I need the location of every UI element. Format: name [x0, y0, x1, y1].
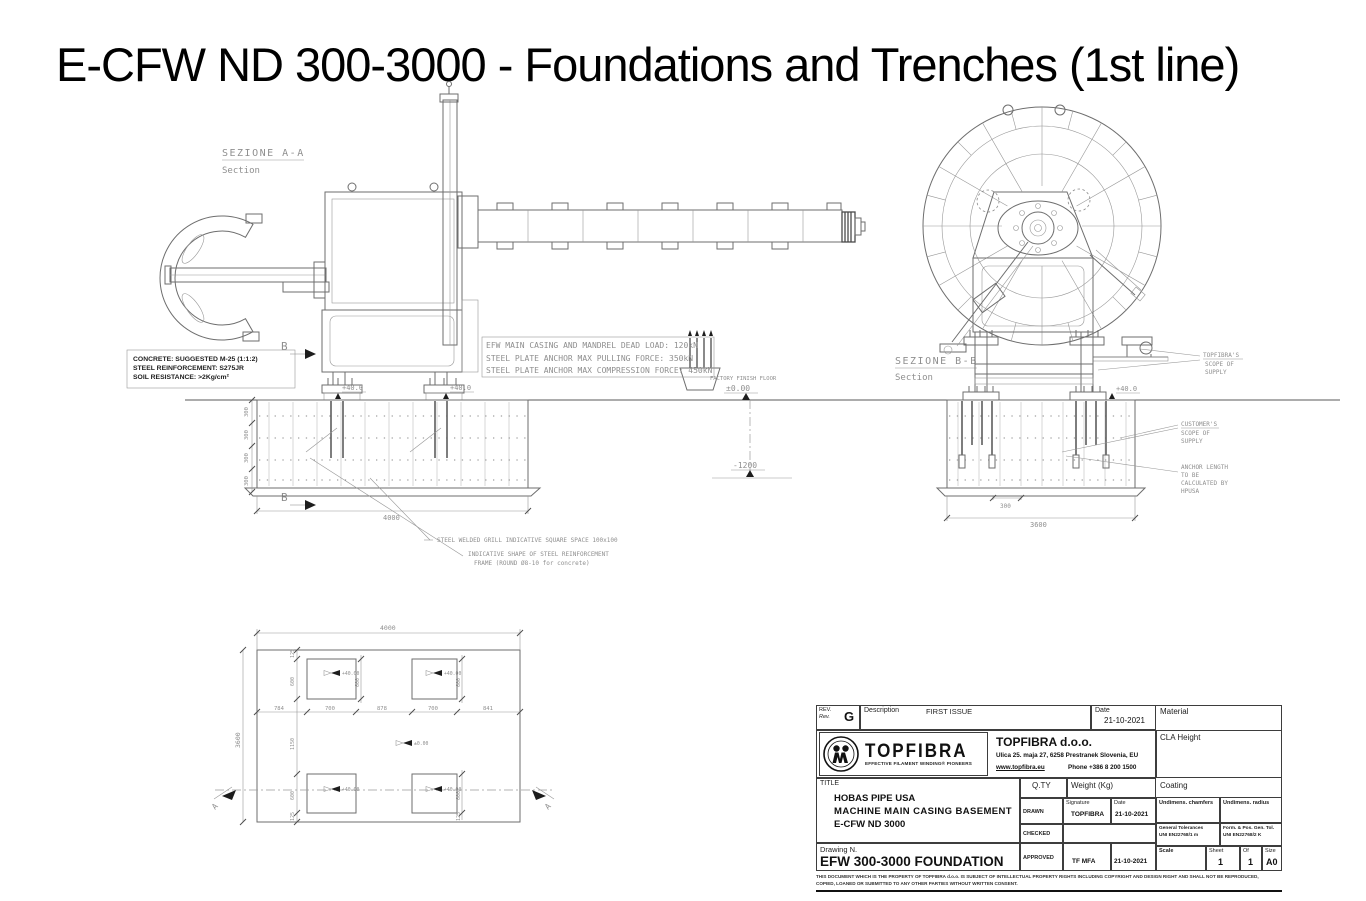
plan-outline — [257, 650, 520, 822]
plan-floor-level: ±0.00 — [414, 741, 429, 747]
dim-bb-pad-space: 300 — [1000, 503, 1011, 510]
logo-wordmark: TOPFIBRA — [865, 741, 972, 761]
scope-customer-line1: CUSTOMER'S — [1181, 421, 1218, 428]
concrete-note-line1: CONCRETE: SUGGESTED M-25 (1:1:2) — [133, 356, 258, 363]
scope-topfibra-line3: SUPPLY — [1205, 369, 1227, 376]
plan-dim-row: 700 — [428, 706, 438, 712]
plan-dim-width: 4000 — [380, 624, 396, 632]
scope-customer-line2: SCOPE OF — [1181, 430, 1210, 437]
scope-topfibra-line1: TOPFIBRA'S — [1203, 352, 1240, 359]
drawing-n-label: Drawing N. — [820, 845, 857, 854]
plan-pad-level: +40.00 — [342, 787, 359, 793]
logo-tagline: EFFECTIVE FILAMENT WINDING® PIONEERS — [865, 761, 972, 766]
company-phone: Phone +386 8 200 1500 — [1068, 764, 1136, 771]
signature-label: Signature — [1066, 800, 1090, 806]
plan-pocket — [307, 774, 356, 813]
drawn-signature: TOPFIBRA — [1071, 811, 1104, 818]
rev-label-it: Rev. — [819, 714, 830, 720]
date-label: Date — [1095, 707, 1110, 714]
plan-dim-col: 1150 — [290, 738, 296, 750]
drawn-label: DRAWN — [1023, 809, 1044, 815]
plan-dim-col: 125 — [290, 812, 296, 821]
load-note-line3: STEEL PLATE ANCHOR MAX COMPRESSION FORCE… — [486, 366, 713, 375]
approved-label: APPROVED — [1023, 855, 1054, 861]
of-value: 1 — [1248, 857, 1253, 867]
plan-dim-col: 600 — [290, 791, 296, 800]
frame-trapezoid — [973, 192, 1093, 258]
approved-date: 21-10-2021 — [1114, 858, 1147, 865]
dim-bb-pad-level: +40.0 — [1116, 385, 1137, 393]
company-web: www.topfibra.eu — [996, 764, 1045, 771]
qty-label: Q.TY — [1032, 781, 1051, 790]
title-line3: E-CFW ND 3000 — [834, 819, 905, 830]
undim-chamfers-label: Undimens. chamfers — [1159, 800, 1213, 806]
title-block: REV. Rev. G Description FIRST ISSUE Date… — [816, 705, 1282, 871]
load-note: EFW MAIN CASING AND MANDREL DEAD LOAD: 1… — [482, 337, 714, 377]
drawing-n-value: EFW 300-3000 FOUNDATION — [820, 854, 1004, 869]
title-line1: HOBAS PIPE USA — [834, 793, 915, 804]
plan-dim-row: 841 — [483, 706, 493, 712]
concrete-note-line3: SOIL RESISTANCE: >2Kg/cm² — [133, 374, 230, 381]
topfibra-logo-icon — [822, 735, 860, 773]
floor-level: ±0.00 — [726, 384, 750, 393]
checked-label: CHECKED — [1023, 831, 1050, 837]
section-a-marker-left: A — [210, 802, 220, 812]
scope-topfibra-line2: SCOPE OF — [1205, 361, 1234, 368]
concrete-note-line2: STEEL REINFORCEMENT: S275JR — [133, 365, 244, 372]
company-logo: TOPFIBRA EFFECTIVE FILAMENT WINDING® PIO… — [819, 732, 988, 776]
section-arrow-icon — [305, 500, 316, 510]
undim-radius-label: Undimens. radius — [1223, 800, 1269, 806]
frame-note-line1: INDICATIVE SHAPE OF STEEL REINFORCEMENT — [468, 551, 609, 558]
dim-foundation-width: 4000 — [383, 514, 400, 522]
dim-chain-300: 300 — [244, 430, 250, 440]
legal-line1: THIS DOCUMENT WHICH IS THE PROPERTY OF T… — [816, 874, 1259, 879]
plan-dim-row: 700 — [325, 706, 335, 712]
plan-pocket — [412, 659, 457, 699]
dim-chain-300: 300 — [244, 453, 250, 463]
section-a-label: SEZIONE A-A — [222, 148, 305, 159]
rev-label: REV. — [819, 707, 831, 713]
section-arrow-icon — [532, 790, 546, 800]
section-arrow-icon — [305, 349, 316, 359]
dim-chain-300: 300 — [244, 407, 250, 417]
section-b-view: SEZIONE B-B Section — [895, 105, 1243, 400]
grill-note: STEEL WELDED GRILL INDICATIVE SQUARE SPA… — [437, 537, 618, 544]
plan-pad-level: +40.00 — [444, 671, 461, 677]
scope-customer-line3: SUPPLY — [1181, 438, 1203, 445]
description-label: Description — [864, 707, 899, 714]
date-value: 21-10-2021 — [1104, 716, 1145, 725]
title-label: TITLE — [820, 780, 839, 787]
dim-left-pad-level: +40.0 — [342, 384, 363, 392]
dim-chain-300: 300 — [244, 476, 250, 486]
plan-dim-600: 600 — [355, 678, 361, 687]
sheet-label: Sheet — [1209, 848, 1223, 854]
legal-notice: THIS DOCUMENT WHICH IS THE PROPERTY OF T… — [816, 873, 1282, 892]
coating-label: Coating — [1160, 781, 1188, 790]
weight-label: Weight (Kg) — [1071, 781, 1113, 790]
plan-dim-col: 600 — [290, 677, 296, 686]
company-address: Ulica 25. maja 27, 6258 Prestranek Slove… — [996, 752, 1138, 759]
plan-dim-row: 784 — [274, 706, 285, 712]
main-casing — [325, 192, 462, 310]
plan-dim-height: 3600 — [234, 732, 242, 748]
guide-ring — [160, 216, 253, 340]
plan-dim-col: 125 — [290, 649, 296, 658]
section-b-sublabel: Section — [895, 373, 933, 383]
dim-right-pad-level: +40.0 — [450, 384, 471, 392]
title-line2: MACHINE MAIN CASING BASEMENT — [834, 806, 1012, 817]
dim-bb-foundation-width: 3600 — [1030, 521, 1047, 529]
sheet-value: 1 — [1218, 857, 1223, 867]
section-a-sublabel: Section — [222, 166, 260, 176]
approved-signature: TF MFA — [1072, 858, 1095, 865]
section-b-label: SEZIONE B-B — [895, 356, 978, 367]
date-col-label: Date — [1114, 800, 1126, 806]
anchor-note-line2: TO BE — [1181, 472, 1199, 479]
bb-pad-right — [1070, 392, 1106, 400]
plan-pocket — [307, 659, 356, 699]
plan-dim-600: 600 — [456, 678, 462, 687]
mandrel — [478, 210, 842, 242]
legal-line2: COPIED, LOANED OR SUBMITTED TO ANY OTHER… — [816, 881, 1018, 886]
form-tol-line1: Form. & Pos. Gen. Tol. — [1223, 826, 1274, 831]
plan-pad-level: +40.00 — [342, 671, 359, 677]
company-name: TOPFIBRA d.o.o. — [996, 735, 1092, 749]
drawn-date: 21-10-2021 — [1115, 811, 1148, 818]
rev-value: G — [844, 709, 854, 724]
plan-dim-row: 878 — [377, 706, 387, 712]
anchor-note-line3: CALCULATED BY — [1181, 480, 1228, 487]
section-a-view: SEZIONE A-A Section — [160, 82, 865, 511]
bb-pad-left — [963, 392, 999, 400]
plan-dim-600: 600 — [456, 791, 462, 800]
section-arrow-icon — [222, 790, 236, 800]
section-b-marker-top: B — [281, 340, 288, 353]
material-label: Material — [1160, 707, 1188, 716]
concrete-note: CONCRETE: SUGGESTED M-25 (1:1:2) STEEL R… — [127, 350, 295, 388]
frame-note-line2: FRAME (ROUND Ø8-10 for concrete) — [474, 560, 590, 567]
form-tol-line2: UNI EN22768/2 K — [1223, 833, 1261, 838]
load-note-line1: EFW MAIN CASING AND MANDREL DEAD LOAD: 1… — [486, 341, 698, 350]
of-label: Of — [1243, 848, 1249, 854]
description-value: FIRST ISSUE — [926, 707, 972, 716]
size-value: A0 — [1266, 857, 1278, 867]
anchor-note-line1: ANCHOR LENGTH — [1181, 464, 1228, 471]
gen-tol-line1: General Tolerances — [1159, 826, 1203, 831]
trench-level: -1200 — [733, 461, 757, 470]
plan-pocket — [412, 774, 457, 813]
section-b-foundation: 300 3600 CUSTOMER'S SCOPE OF SUPPLY ANCH… — [937, 400, 1228, 529]
scale-label: Scale — [1159, 848, 1173, 854]
load-note-line2: STEEL PLATE ANCHOR MAX PULLING FORCE: 35… — [486, 354, 693, 363]
floor-label: FACTORY FINISH FLOOR — [710, 376, 777, 382]
section-a-marker-right: A — [543, 802, 553, 812]
size-label: Size — [1265, 848, 1276, 854]
section-a-foundation: +40.0 +40.0 300 300 300 300 4000 STEEL W… — [244, 384, 618, 567]
plan-dim-125: 125 — [456, 812, 462, 821]
anchor-note-line4: HPUSA — [1181, 488, 1199, 495]
section-b-marker-bottom: B — [281, 491, 288, 504]
plan-view: +40.00 +40.00 +40.00 +40.00 ±0.00 4000 3… — [210, 624, 554, 825]
drawing-sheet: E-CFW ND 300-3000 - Foundations and Tren… — [0, 0, 1366, 901]
gen-tol-line2: UNI EN22768/1 m — [1159, 833, 1198, 838]
hub — [998, 201, 1078, 255]
